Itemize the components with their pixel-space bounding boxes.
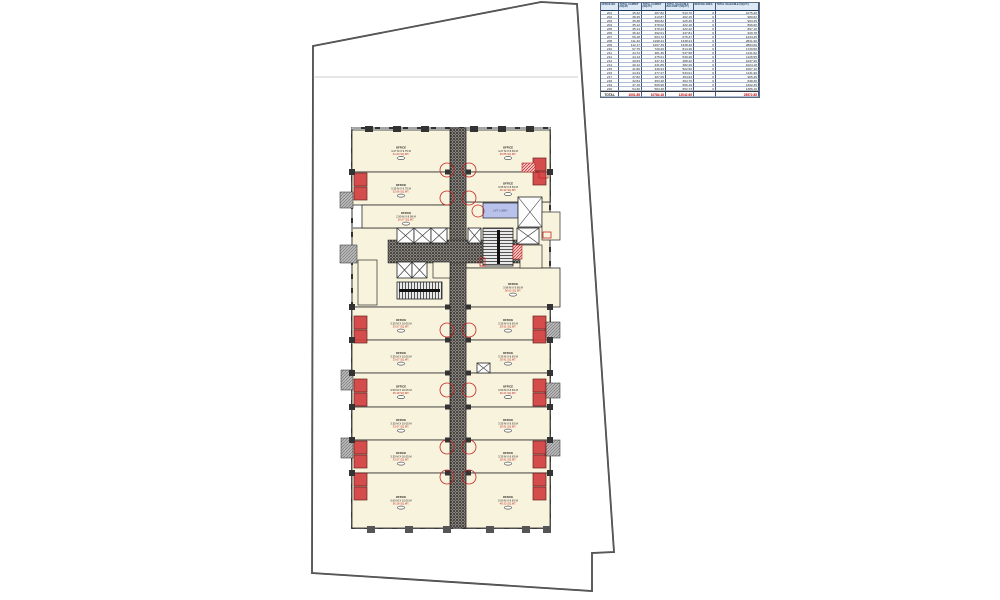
lift-shaft [517,228,539,244]
column [445,471,450,476]
toilet-block [354,393,367,406]
toilet-block [533,487,546,500]
toilet-hatch [522,163,535,172]
table-symbol [397,429,404,432]
lift-shaft [431,228,447,243]
unit-office-207: OFFICE3.35 M X 10.05 M33.67 SQ.MT. [352,407,450,440]
table-symbol [397,396,404,399]
unit-area: 30.21 SQ.MT. [500,391,517,395]
unit-area: 48.33 SQ.MT. [500,502,517,506]
toilet-block [354,379,367,392]
floor-plan-sheet: OFFICE4.27 M X 9.75 M41.63 SQ.MT.OFFICE3… [0,0,1000,600]
column [526,126,534,132]
toilet-block [354,330,367,343]
service-room [520,245,542,268]
column [466,438,471,443]
column [405,526,413,533]
lift-lobby-label: LIFT LOBBY [493,209,508,213]
unit-area: 38.02 SQ.MT. [505,289,522,293]
table-symbol [504,157,511,160]
column [547,304,553,310]
table-total-row: TOTAL1001.8510784.1612042.6925572.85 [601,91,759,97]
toilet-block [533,379,546,392]
column-header: TOTAL CARPET (SQ.M) [619,3,642,11]
unit-area: 26.32 SQ.MT. [500,188,517,192]
duct [340,245,357,263]
column [445,405,450,410]
table-cell: 25572.85 [716,91,759,97]
service-room [433,262,450,278]
lift-shaft [518,197,542,227]
unit-area: 28.91 SQ.MT. [500,458,517,462]
unit-area: 33.67 SQ.MT. [393,325,410,329]
column [349,337,355,343]
table-symbol [397,157,404,160]
column [466,371,471,376]
table-symbol [397,462,404,465]
column [486,526,494,533]
column [421,126,429,132]
duct [545,322,560,338]
column [547,470,553,476]
column-header: TOTAL SALEABLE (SQ.FT.) [716,3,759,11]
toilet-block [354,173,367,186]
unit-office-205: OFFICE3.35 M X 10.05 M33.67 SQ.MT. [352,340,450,373]
lift-shaft [412,262,427,278]
table-symbol [397,506,404,509]
stair-divider [399,289,440,292]
column [466,405,471,410]
unit-area: 28.91 SQ.MT. [500,325,517,329]
toilet-block [354,455,367,468]
column [349,169,355,175]
unit-office-203: OFFICE2.90 M X 8.99 M26.07 SQ.MT. [362,205,450,228]
unit-area: 41.63 SQ.MT. [393,152,410,156]
toilet-block [533,330,546,343]
column [470,126,478,132]
table-symbol [402,222,409,225]
floor-plan-drawing: OFFICE4.27 M X 9.75 M41.63 SQ.MT.OFFICE3… [0,0,1000,600]
column-header: TOTAL SALEABLE BALCONY (SQ.FT.) [666,3,694,11]
column [349,304,355,310]
stair-divider [497,230,500,264]
column [547,437,553,443]
column [466,338,471,343]
table-cell: TOTAL [601,91,619,97]
column [349,370,355,376]
toilet-block [354,441,367,454]
column-header: TOTAL CARPET (SQ.FT.) [642,3,666,11]
column [349,404,355,410]
table-symbol [504,396,511,399]
unit-area: 28.91 SQ.MT. [500,358,517,362]
toilet-block [354,487,367,500]
column [466,471,471,476]
column [498,126,506,132]
table-symbol [397,362,404,365]
unit-office-201: OFFICE4.27 M X 9.75 M41.63 SQ.MT. [352,130,450,172]
table-symbol [504,429,511,432]
lift-shaft [414,228,431,243]
column [547,337,553,343]
column [445,305,450,310]
column [466,305,471,310]
unit-area: 33.67 SQ.MT. [393,458,410,462]
column [393,126,401,132]
lift-shaft [397,262,412,278]
area-statement-table: OFFICE NO.TOTAL CARPET (SQ.M)TOTAL CARPE… [600,2,760,98]
unit-area: 56.28 SQ.MT. [393,502,410,506]
column [466,170,471,175]
table-cell [694,91,716,97]
column [547,404,553,410]
toilet-block [354,187,367,200]
table-cell: 1001.85 [619,91,642,97]
table-symbol [504,362,511,365]
column [349,437,355,443]
unit-area: 26.07 SQ.MT. [398,218,415,222]
column [445,438,450,443]
duct [545,383,560,398]
toilet-block [533,316,546,329]
unit-area: 32.66 SQ.MT. [393,190,410,194]
unit-office-212: OFFICE3.96 M X 9.60 M38.02 SQ.MT. [466,268,560,307]
table-symbol [504,329,511,332]
toilet-block [533,172,546,185]
unit-area: 35.18 SQ.MT. [393,391,410,395]
unit-area: 33.67 SQ.MT. [393,425,410,429]
column [445,170,450,175]
table-symbol [504,462,511,465]
column [445,338,450,343]
service-room [358,260,377,305]
column [443,526,451,533]
unit-office-216: OFFICE3.35 M X 8.63 M28.91 SQ.MT. [466,407,550,440]
column [445,371,450,376]
unit-area: 36.85 SQ.MT. [500,152,517,156]
column [365,126,373,132]
toilet-block [533,473,546,486]
table-symbol [397,194,404,197]
column [547,370,553,376]
toilet-block [354,473,367,486]
table-symbol [397,329,404,332]
column-header: REFUGE AREA [694,3,716,11]
lift-shaft [468,228,481,243]
table-cell: 10784.16 [642,91,666,97]
column [543,526,551,533]
toilet-block [533,455,546,468]
unit-area: 33.67 SQ.MT. [393,358,410,362]
unit-area: 28.91 SQ.MT. [500,425,517,429]
table-symbol [504,506,511,509]
column [522,526,530,533]
table-cell: 12042.69 [666,91,694,97]
table-symbol [504,193,511,196]
table-header-row: OFFICE NO.TOTAL CARPET (SQ.M)TOTAL CARPE… [601,3,759,11]
toilet-block [533,393,546,406]
column [547,169,553,175]
lift-shaft [477,363,490,373]
duct [340,192,353,208]
toilet-block [533,441,546,454]
toilet-block [354,316,367,329]
column-header: OFFICE NO. [601,3,619,11]
lift-shaft [397,228,414,243]
column [349,470,355,476]
toilet-hatch [513,245,522,259]
column [367,526,375,533]
table-symbol [509,293,516,296]
corridor [450,128,466,528]
